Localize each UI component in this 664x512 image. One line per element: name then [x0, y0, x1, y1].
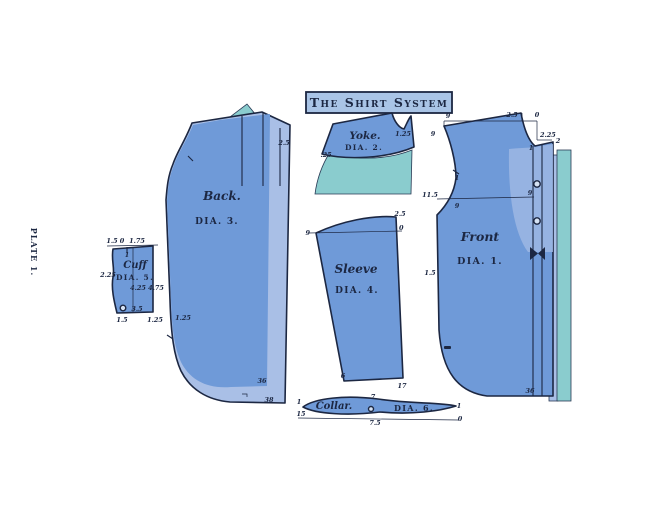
sleeve-outline: [316, 217, 403, 381]
yoke-dia-label: DIA. 2.: [345, 143, 383, 152]
front-measure-neck-point: 1: [529, 144, 534, 152]
plate-label: PLATE 1.: [29, 228, 39, 277]
cuff-buttonhole-icon: [120, 305, 126, 311]
yoke-measure-left: .25: [320, 151, 332, 159]
collar-measure-left-top: 1: [297, 398, 302, 406]
cuff-measure-top-right: 1.75: [129, 237, 145, 245]
front-measure-neck-width: 2.5: [505, 111, 518, 119]
cuff-measure-mid-right: 4.75: [148, 284, 164, 292]
cuff-measure-bottom-mid: 3.5: [131, 305, 143, 313]
collar-buttonhole-icon: [369, 407, 374, 412]
collar-title: Collar.: [316, 401, 353, 412]
front-measure-neck-depth: 2.25: [539, 131, 556, 139]
back-measure-hem-outer: 38: [264, 396, 274, 404]
cuff-measure-mid-center: 4.25: [130, 284, 146, 292]
sleeve-measure-bottom-left: 6: [341, 372, 346, 380]
front-measure-armhole-notch: 1: [455, 174, 460, 182]
page-title: The Shirt System: [310, 95, 449, 110]
yoke-measure-right: 1.25: [395, 130, 411, 138]
collar-dia-label: DIA. 6.: [394, 403, 434, 413]
back-dia-label: DIA. 3.: [195, 217, 239, 227]
collar-measure-left-bottom: 15: [296, 410, 306, 418]
front-measure-zero: 0: [535, 111, 540, 119]
front-measure-scye-depth: 11.5: [422, 191, 438, 199]
title-box: The Shirt System: [306, 92, 452, 113]
collar-measure-mid-top: 7: [371, 393, 376, 401]
sleeve-measure-bottom-right: 17: [397, 382, 407, 390]
sleeve-dia-label: DIA. 4.: [335, 286, 379, 296]
collar-piece: 1 15 Collar. 7 7.5 DIA. 6. 1 0: [296, 393, 462, 427]
front-notch-dash: [444, 346, 451, 349]
yoke-piece: Yoke. DIA. 2. 1.25 .25: [315, 113, 414, 194]
pattern-plate: PLATE 1. Back. DIA. 3. 2.5 1.25 36 38 1.…: [0, 0, 664, 512]
front-underlay-teal-strip: [557, 150, 571, 401]
sleeve-piece: 2.5 9 0 Sleeve DIA. 4. 6 17: [305, 210, 407, 390]
collar-measure-right-top: 1: [457, 402, 462, 410]
cuff-dia-label: DIA. 5.: [116, 273, 154, 282]
cuff-measure-top-zero: 0: [120, 237, 125, 245]
front-measure-band-width: 2: [555, 137, 561, 145]
back-title: Back.: [202, 189, 241, 203]
front-measure-waist: 1.5: [424, 269, 436, 277]
back-measure-pleat: 2.5: [277, 139, 290, 147]
front-measure-line-left-nine: 9: [455, 202, 460, 210]
sleeve-title: Sleeve: [334, 262, 377, 276]
front-measure-shoulder-nine: 9: [431, 130, 436, 138]
cuff-measure-one: 1: [125, 251, 130, 259]
cuff-measure-bottom-left: 1.5: [116, 316, 128, 324]
front-title: Front: [460, 229, 500, 244]
yoke-title: Yoke.: [349, 130, 380, 142]
front-piece: 9 2.5 0 9 2.25 1 2 1 11.5 9 9 Front DIA.…: [422, 111, 571, 401]
sleeve-measure-cap: 2.5: [393, 210, 406, 218]
front-measure-line-right-nine: 9: [528, 189, 533, 197]
back-inner-panel: [167, 114, 270, 387]
back-measure-side: 1.25: [175, 314, 191, 322]
back-piece: Back. DIA. 3. 2.5 1.25 36 38: [166, 104, 290, 404]
front-measure-hem: 36: [525, 387, 535, 395]
shirt-system-diagram: PLATE 1. Back. DIA. 3. 2.5 1.25 36 38 1.…: [0, 0, 664, 512]
front-dia-label: DIA. 1.: [457, 256, 503, 267]
sleeve-measure-zero: 0: [399, 224, 404, 232]
cuff-measure-mid-left: 2.25: [99, 271, 116, 279]
front-measure-top-nine: 9: [446, 112, 451, 120]
cuff-measure-bottom-right: 1.25: [147, 316, 163, 324]
collar-measure-mid-bottom: 7.5: [369, 419, 381, 427]
collar-measure-right-bottom: 0: [458, 415, 463, 423]
sleeve-measure-left-nine: 9: [305, 229, 310, 237]
cuff-measure-top-left: 1.5: [106, 237, 118, 245]
back-measure-hem-inner: 36: [257, 377, 267, 385]
front-button-top-icon: [534, 181, 540, 187]
cuff-title: Cuff: [123, 260, 148, 271]
cuff-piece: 1.5 0 1.75 1 Cuff DIA. 5. 2.25 4.25 4.75…: [99, 237, 164, 324]
front-button-mid-icon: [534, 218, 540, 224]
